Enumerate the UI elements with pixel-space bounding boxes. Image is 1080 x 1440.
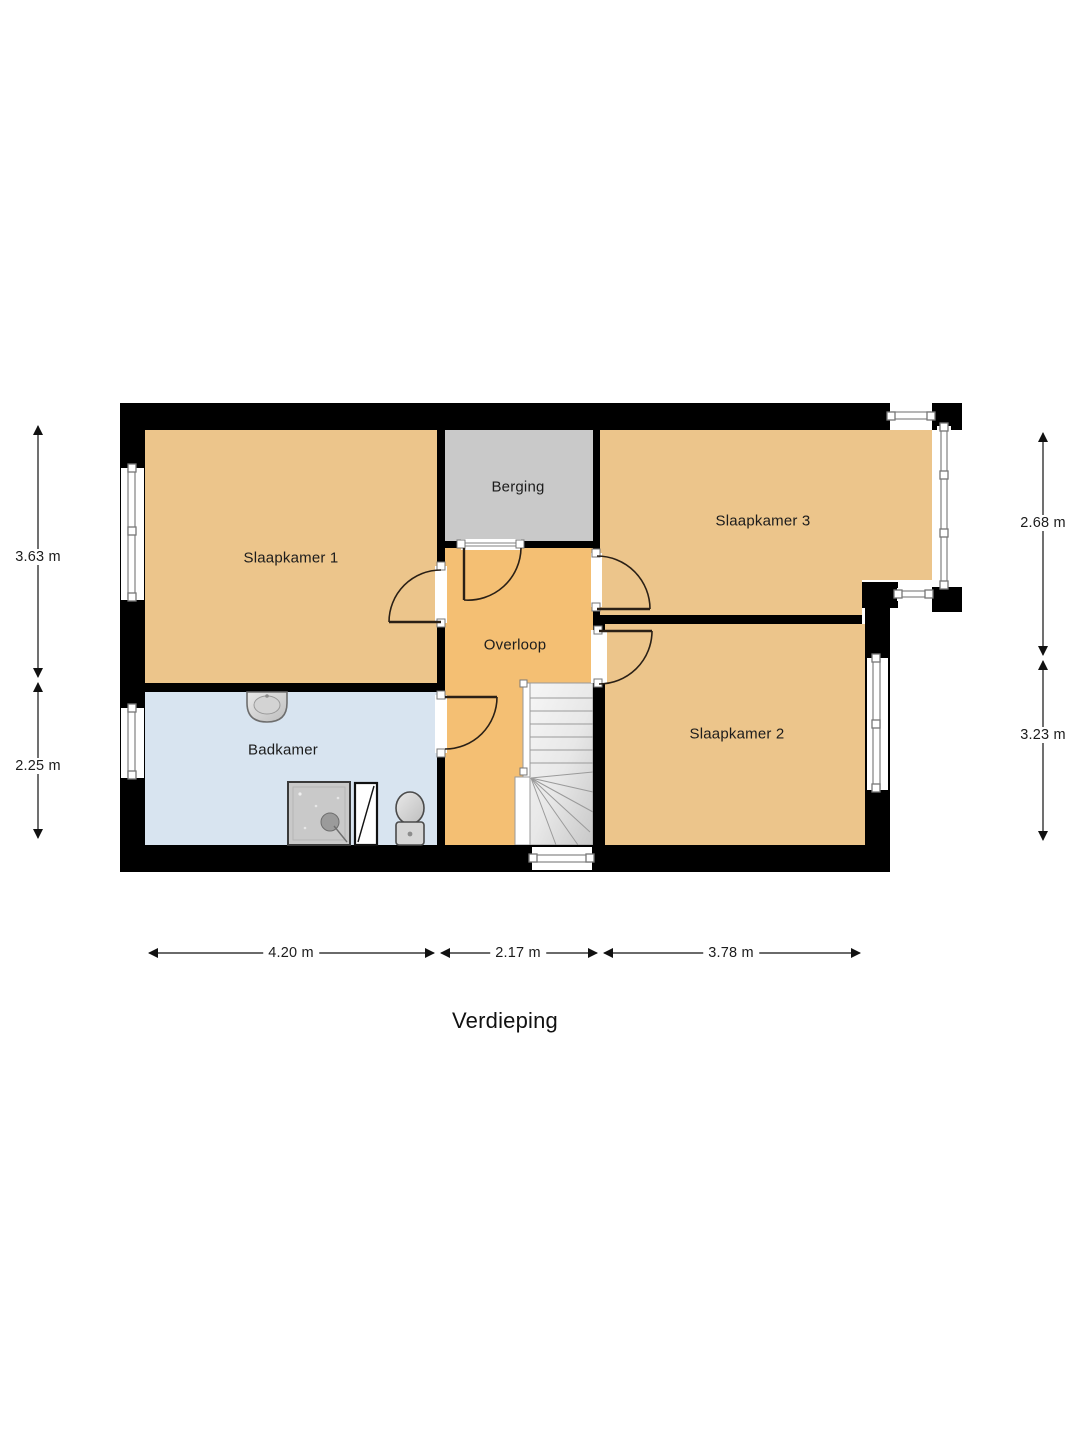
dim-label-left-bottom: 2.25 m <box>10 758 66 774</box>
toilet-icon <box>396 792 424 845</box>
window-bay-bottom-icon <box>894 588 933 601</box>
floor-slaapkamer3-bay <box>862 430 932 580</box>
window-slaapkamer2-icon <box>867 654 888 792</box>
dim-label-left-top: 3.63 m <box>10 549 66 565</box>
room-label-overloop: Overloop <box>484 637 546 654</box>
wall-bay-left-block <box>862 582 898 608</box>
wall-top <box>120 403 890 430</box>
room-label-slaapkamer2: Slaapkamer 2 <box>690 726 785 743</box>
dim-label-right-top: 2.68 m <box>1015 515 1071 531</box>
dim-label-bottom-left: 4.20 m <box>263 945 319 961</box>
window-bay-top-icon <box>887 406 935 426</box>
staircase <box>515 680 593 845</box>
floor-overloop <box>443 548 593 683</box>
shower-screen-icon <box>355 783 377 845</box>
shower-icon <box>288 782 350 845</box>
room-label-slaapkamer3: Slaapkamer 3 <box>716 513 811 530</box>
page-title: Verdieping <box>452 1008 558 1034</box>
dim-label-bottom-middle: 2.17 m <box>490 945 546 961</box>
wall-slaapkamer1-badkamer <box>120 683 445 692</box>
wall-slaapkamer3-slaapkamer2 <box>593 615 862 624</box>
dim-label-bottom-right: 3.78 m <box>703 945 759 961</box>
room-label-berging: Berging <box>491 479 544 496</box>
window-bay-right-icon <box>937 423 951 589</box>
room-label-badkamer: Badkamer <box>248 742 318 759</box>
wall-bottom <box>120 845 890 872</box>
room-label-slaapkamer1: Slaapkamer 1 <box>244 550 339 567</box>
wall-slaapkamer1-overloop <box>437 430 445 692</box>
window-slaapkamer1-icon <box>121 464 144 601</box>
sink-icon <box>247 692 287 722</box>
dim-label-right-bottom: 3.23 m <box>1015 727 1071 743</box>
window-badkamer-icon <box>121 704 144 779</box>
wall-bay-bottom-corner <box>932 587 962 612</box>
floor-plan-drawing <box>0 0 1080 1440</box>
floor-plan: Slaapkamer 1 Berging Slaapkamer 3 Overlo… <box>0 0 1080 1440</box>
window-stairwell-icon <box>529 847 594 870</box>
